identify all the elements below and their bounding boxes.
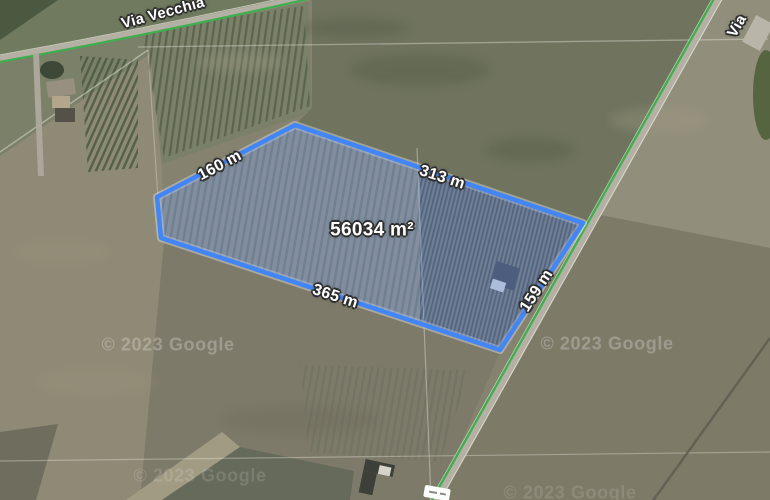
measurement-layer <box>0 0 770 500</box>
measurement-polygon[interactable] <box>157 125 583 350</box>
map-viewport[interactable]: 160 m 313 m 365 m 159 m 56034 m² Via Vec… <box>0 0 770 500</box>
